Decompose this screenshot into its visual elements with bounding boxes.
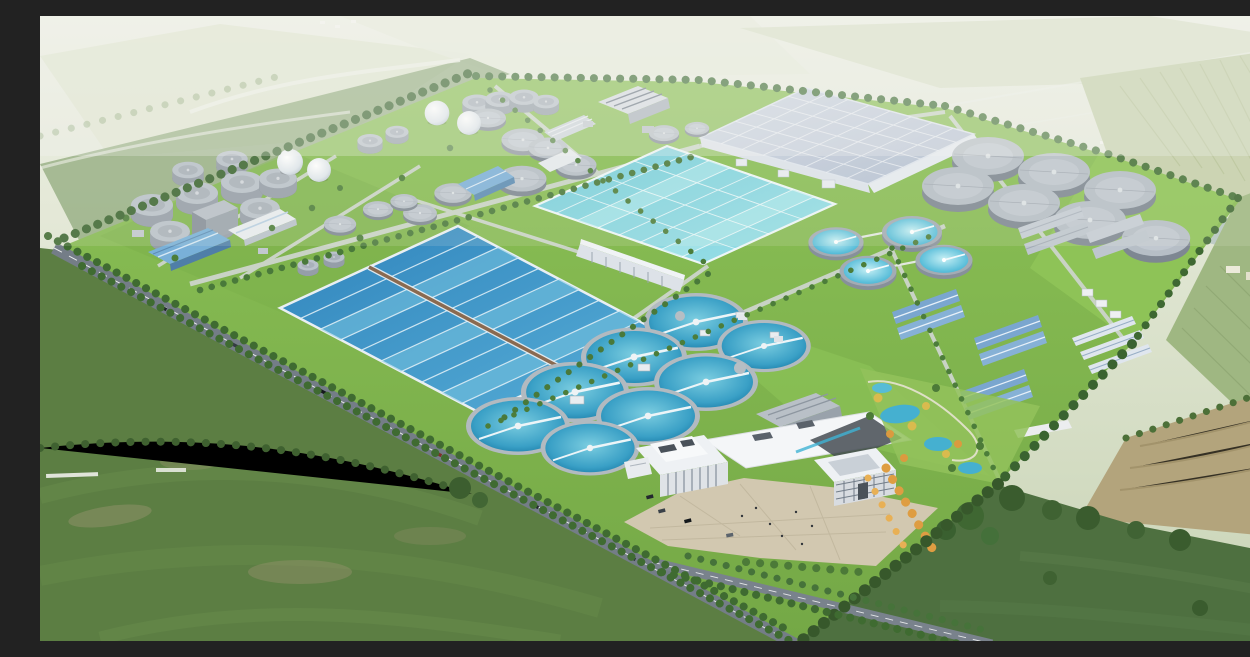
- secondary-clarifier: [541, 420, 640, 475]
- garden-pond: [958, 462, 982, 474]
- atmospheric-haze: [40, 16, 1250, 156]
- garden-pond: [924, 437, 952, 451]
- blue-round-tank: [916, 245, 973, 279]
- blue-round-tank: [840, 256, 897, 290]
- aerial-plant-rendering: Aerial rendering of a large wastewater t…: [40, 16, 1250, 641]
- atmospheric-haze-mid: [40, 156, 1250, 246]
- garden-pond: [872, 383, 892, 393]
- rendering-canvas: [40, 16, 1250, 641]
